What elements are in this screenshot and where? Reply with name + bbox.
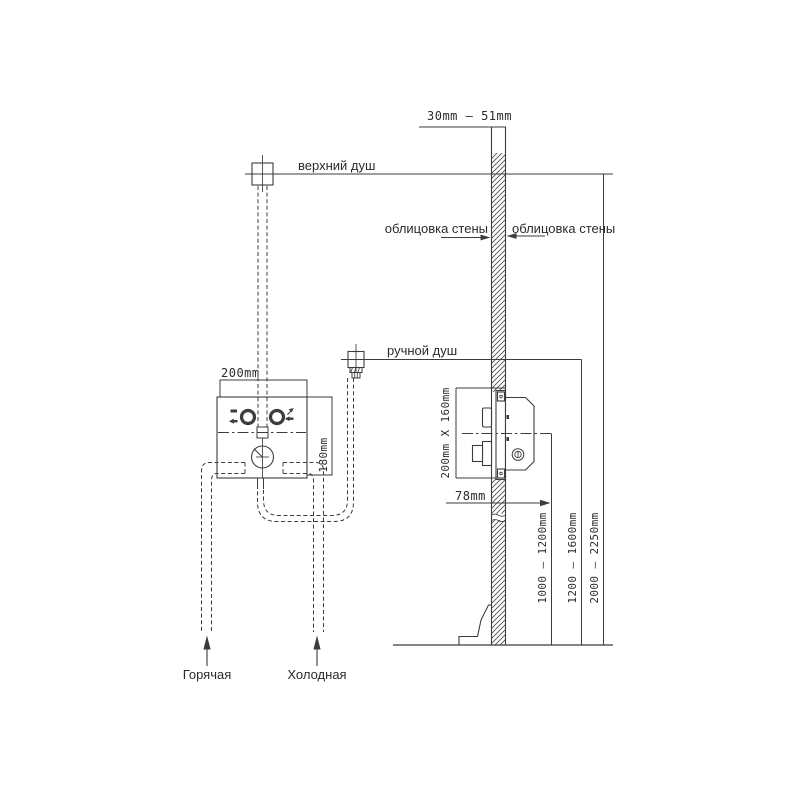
mixer-height-label: 1000 — 1200mm [536, 512, 549, 603]
rough-in-label: 200mm X 160mm [439, 387, 452, 478]
installation-diagram: 30mm — 51mm верхний душ облицовка стены … [0, 0, 800, 800]
box-width-label: 200mm [221, 366, 260, 380]
right-knob-icon [285, 408, 294, 421]
arrow-right-icon [540, 500, 551, 506]
mounting-tab-bottom [498, 469, 505, 478]
wall-cladding-left-label: облицовка стены [385, 221, 488, 236]
tub-edge-profile [459, 605, 492, 645]
overhead-shower-label: верхний душ [298, 158, 375, 173]
up-arrow-icon [313, 636, 320, 650]
mixer-front-view: 200mm 180mm [217, 366, 332, 478]
cold-pipe-inner [283, 474, 314, 633]
width-dimension-bracket [220, 380, 307, 397]
up-arrow-icon [203, 636, 210, 650]
arm-depth-dimension: 30mm — 51mm [419, 109, 512, 127]
hot-pipe-outer [202, 463, 246, 633]
rough-in-dimension: 200mm X 160mm [439, 387, 505, 478]
cold-pipe-outer [283, 463, 324, 633]
wall-cladding-right-label: облицовка стены [512, 221, 615, 236]
arm-depth-label: 30mm — 51mm [427, 109, 512, 123]
overhead-height-label: 2000 — 2250mm [588, 512, 601, 603]
cold-supply-label: Холодная [287, 667, 346, 682]
supply-pipes [202, 463, 324, 633]
upper-trim [483, 408, 492, 427]
mounting-plate [496, 391, 506, 480]
height-dimensions: 1000 — 1200mm 1200 — 1600mm 2000 — 2250m… [536, 174, 604, 645]
supply-arrows: Горячая Холодная [183, 636, 347, 683]
hand-shower-label: ручной душ [387, 343, 457, 358]
left-knob [242, 411, 255, 424]
overhead-shower: верхний душ [245, 155, 613, 427]
hot-supply-label: Горячая [183, 667, 232, 682]
hose-outer [258, 378, 354, 522]
hand-shower-height-label: 1200 — 1600mm [566, 512, 579, 603]
mixer-side-view [462, 391, 552, 480]
valve-trim [473, 446, 483, 462]
wall-hatch-upper [492, 153, 506, 392]
mounting-tab-top [498, 392, 505, 401]
lower-trim [483, 442, 492, 466]
hot-pipe-inner [212, 474, 246, 633]
right-knob [271, 411, 284, 424]
wall-section [490, 127, 508, 645]
left-knob-icon [229, 410, 238, 424]
hose-inner [264, 378, 348, 516]
box-depth-label: 78mm [455, 489, 486, 503]
